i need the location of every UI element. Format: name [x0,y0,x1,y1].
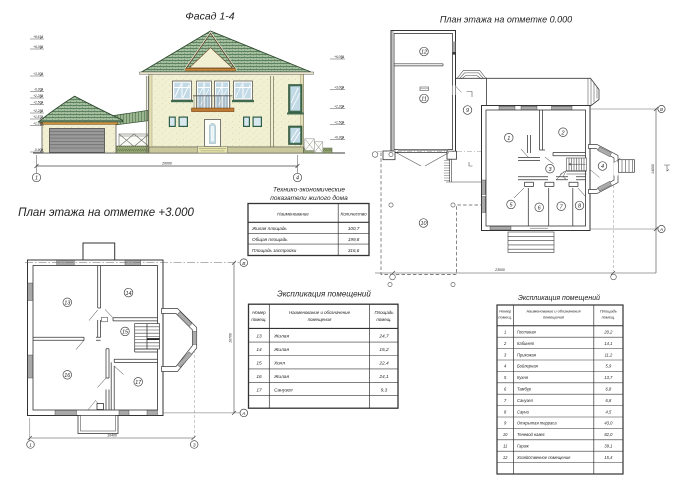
svg-text:+0,300: +0,300 [334,136,344,140]
svg-text:В: В [660,107,663,112]
svg-text:Жилая: Жилая [273,347,289,353]
svg-text:помещ.: помещ. [251,317,266,322]
svg-text:А: А [659,227,663,232]
svg-text:24,7: 24,7 [378,334,389,340]
svg-text:Площадь застройки: Площадь застройки [252,247,297,253]
svg-text:Номер: Номер [499,309,512,314]
svg-text:10700: 10700 [229,333,233,343]
svg-text:Общая площадь: Общая площадь [252,237,288,242]
svg-text:316,6: 316,6 [348,248,360,253]
svg-text:16: 16 [256,374,262,380]
svg-text:+1,380: +1,380 [33,122,43,126]
svg-text:-0,300: -0,300 [34,88,43,92]
svg-text:10: 10 [503,432,508,437]
svg-text:199,8: 199,8 [348,237,360,242]
svg-text:10400: 10400 [107,434,117,438]
svg-text:помещ.: помещ. [602,315,616,320]
svg-text:помещ.: помещ. [376,317,391,322]
svg-text:15: 15 [256,361,262,367]
svg-text:15,2: 15,2 [379,347,389,353]
svg-text:5,9: 5,9 [606,364,612,369]
svg-text:16: 16 [64,373,71,379]
svg-text:Санузел: Санузел [274,387,293,393]
svg-text:+6,050: +6,050 [334,55,344,59]
svg-text:13: 13 [256,334,262,340]
svg-text:+1,500: +1,500 [334,121,344,125]
svg-text:А: А [241,411,245,417]
svg-text:Технико-экономические: Технико-экономические [273,187,345,194]
svg-text:9,3: 9,3 [381,387,388,393]
svg-text:14: 14 [125,291,131,297]
svg-text:План этажа на отметке 0.000: План этажа на отметке 0.000 [440,15,572,25]
svg-text:10: 10 [420,221,427,227]
svg-text:+2,200: +2,200 [334,105,344,109]
svg-text:13,7: 13,7 [604,375,613,380]
svg-text:Номер: Номер [252,310,266,315]
svg-text:Площадь: Площадь [600,309,617,314]
svg-text:6,8: 6,8 [606,387,612,392]
svg-text:Гараж: Гараж [517,444,529,449]
svg-text:13: 13 [64,301,71,307]
svg-text:6,8: 6,8 [606,398,612,403]
svg-text:1: 1 [35,176,38,182]
svg-text:Бойлерная: Бойлерная [517,364,539,369]
svg-text:-0,900: -0,900 [34,148,43,152]
svg-text:4: 4 [601,164,604,170]
svg-text:помещения: помещения [543,315,564,320]
svg-text:Холл: Холл [273,361,285,367]
svg-text:17: 17 [135,380,142,386]
svg-text:+1,570: +1,570 [33,115,43,119]
svg-text:Наименование и обозначения: Наименование и обозначения [526,309,580,314]
svg-text:43,0: 43,0 [604,421,613,426]
svg-text:Наименование: Наименование [277,212,309,217]
svg-text:14000: 14000 [651,164,655,174]
svg-text:+3,000: +3,000 [334,86,344,90]
svg-text:Теневой навес: Теневой навес [517,432,545,437]
svg-text:Экспликация помещений: Экспликация помещений [277,290,371,299]
svg-text:12: 12 [421,50,427,56]
svg-text:Сауна: Сауна [517,409,529,414]
svg-text:11: 11 [503,444,507,449]
svg-text:Фасад 1-4: Фасад 1-4 [185,11,234,23]
svg-text:9: 9 [466,108,469,114]
svg-text:4: 4 [296,176,299,182]
svg-text:15: 15 [122,330,129,336]
svg-text:Хозяйственное помещение: Хозяйственное помещение [516,455,571,460]
svg-text:+2,500: +2,500 [33,101,43,105]
svg-text:помещ.: помещ. [498,315,512,320]
svg-text:20000: 20000 [161,161,172,165]
svg-text:39,1: 39,1 [604,444,612,449]
svg-text:1: 1 [507,136,510,142]
svg-text:План этажа на отметке +3.000: План этажа на отметке +3.000 [18,207,194,219]
svg-text:Жилая: Жилая [273,334,289,340]
svg-text:Кабинет: Кабинет [517,341,535,346]
svg-text:+8,610: +8,610 [33,35,43,39]
svg-text:11: 11 [421,97,427,103]
svg-text:Открытая терраса: Открытая терраса [517,421,557,426]
svg-text:Экспликация помещений: Экспликация помещений [518,294,600,302]
svg-text:20,2: 20,2 [603,330,613,335]
svg-text:Количество: Количество [341,212,368,217]
svg-text:3: 3 [193,443,196,449]
svg-text:100,7: 100,7 [348,226,360,231]
svg-text:Жилая площадь: Жилая площадь [251,226,287,231]
svg-text:показатели жилого дома: показатели жилого дома [270,194,348,202]
svg-text:2: 2 [560,130,564,136]
svg-text:Жилая: Жилая [273,374,289,380]
svg-text:1: 1 [504,330,506,335]
svg-text:Санузел: Санузел [517,398,534,403]
svg-text:12: 12 [503,455,508,460]
svg-text:Площадь: Площадь [374,310,394,315]
svg-text:+2,280: +2,280 [33,94,43,98]
svg-text:+2,280: +2,280 [33,109,43,113]
svg-text:23000: 23000 [494,268,505,272]
svg-text:Кухня: Кухня [517,375,529,380]
svg-text:помещения: помещения [308,317,332,322]
svg-text:4,5: 4,5 [606,409,612,414]
svg-text:Наименование и обозначение: Наименование и обозначение [289,310,351,315]
svg-text:11,2: 11,2 [605,352,613,357]
svg-text:+3,300: +3,300 [33,72,43,76]
svg-text:Прихожая: Прихожая [517,352,537,357]
svg-text:24,1: 24,1 [378,374,389,380]
svg-text:82,0: 82,0 [604,432,613,437]
svg-text:14: 14 [256,347,262,353]
svg-text:+6,050: +6,050 [33,45,43,49]
svg-text:22,4: 22,4 [378,361,389,367]
svg-text:Тамбур: Тамбур [517,387,532,392]
svg-text:Гостиная: Гостиная [517,330,537,335]
svg-text:17: 17 [256,387,262,393]
svg-text:14,1: 14,1 [604,341,612,346]
svg-text:15,4: 15,4 [604,455,613,460]
svg-text:1: 1 [29,443,32,449]
